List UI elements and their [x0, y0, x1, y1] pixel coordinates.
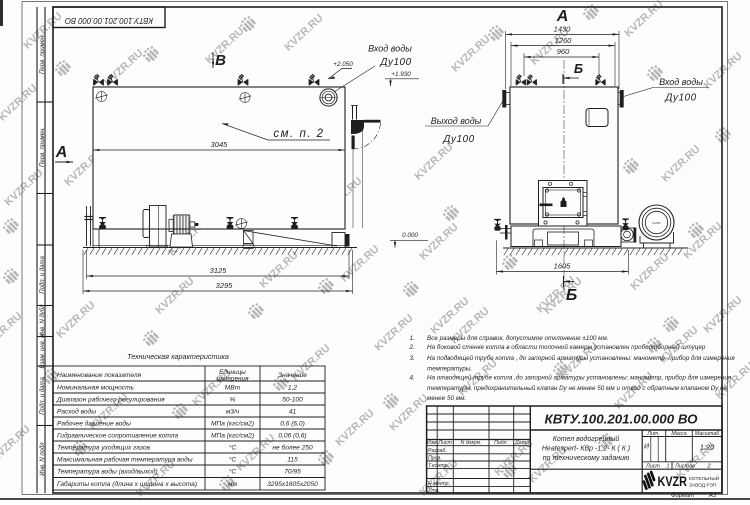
svg-text:Взам. инв. N: Взам. инв. N [40, 333, 46, 369]
svg-text:Инв. N дубл: Инв. N дубл [40, 304, 46, 338]
svg-text:Т.контр.: Т.контр. [428, 463, 449, 469]
svg-text:На подводящей трубе котла , д: На подводящей трубе котла , до запорной … [427, 354, 735, 362]
svg-text:Н.контр.: Н.контр. [428, 481, 450, 487]
svg-text:0,6 (6,0): 0,6 (6,0) [280, 420, 305, 427]
svg-text:не более 250: не более 250 [272, 443, 313, 451]
svg-text:+1.930: +1.930 [391, 71, 411, 78]
svg-text:2: 2 [707, 463, 711, 469]
svg-text:Вход воды: Вход воды [368, 44, 412, 54]
svg-text:Лист: Лист [438, 440, 453, 446]
svg-text:Подп. и дата: Подп. и дата [40, 256, 46, 294]
svg-text:°С: °С [229, 443, 237, 451]
svg-text:Номинальная мощность: Номинальная мощность [57, 384, 135, 391]
svg-text:Инв. N подл: Инв. N подл [40, 442, 46, 476]
svg-text:Перв. примен.: Перв. примен. [40, 127, 46, 167]
svg-text:41: 41 [289, 408, 297, 415]
svg-text:°С: °С [229, 455, 237, 463]
svg-text:МВт: МВт [225, 384, 241, 391]
svg-text:Разраб.: Разраб. [428, 448, 447, 454]
svg-text:Листов: Листов [674, 463, 695, 469]
svg-text:3295х1605х2050: 3295х1605х2050 [267, 481, 318, 488]
svg-text:1: 1 [667, 463, 670, 469]
svg-text:2.: 2. [409, 344, 415, 351]
svg-text:МПа (кгс/см2): МПа (кгс/см2) [211, 432, 254, 439]
svg-text:Лит.: Лит. [646, 431, 659, 437]
svg-text:Масштаб: Масштаб [695, 431, 720, 437]
svg-text:960: 960 [557, 47, 570, 56]
svg-text:0.000: 0.000 [402, 232, 418, 239]
svg-text:Котел водогрейный: Котел водогрейный [553, 435, 620, 443]
svg-text:см. п. 2: см. п. 2 [273, 128, 324, 140]
svg-text:Габариты котла (длина х ширина: Габариты котла (длина х ширина х высота) [57, 480, 197, 488]
svg-text:Изм: Изм [427, 440, 437, 446]
svg-text:Перв. примен.: Перв. примен. [40, 34, 46, 74]
svg-text:МПа (кгс/см2): МПа (кгс/см2) [211, 420, 254, 427]
svg-text:ЗАВОД РЭП: ЗАВОД РЭП [689, 483, 717, 489]
svg-text:KVZR: KVZR [652, 221, 661, 225]
svg-text:Формат: Формат [671, 493, 694, 499]
svg-text:Пров.: Пров. [428, 456, 442, 462]
svg-text:Техническая характеристика: Техническая характеристика [127, 352, 229, 361]
svg-text:А: А [556, 8, 569, 25]
svg-text:Утв.: Утв. [428, 488, 440, 494]
svg-text:Ду100: Ду100 [442, 134, 474, 145]
svg-text:1.: 1. [410, 335, 415, 342]
svg-text:3045: 3045 [211, 140, 229, 149]
svg-text:1,2: 1,2 [288, 384, 297, 391]
svg-text:115: 115 [287, 456, 298, 463]
svg-text:Вход воды: Вход воды [659, 77, 703, 87]
svg-text:Максимальная рабочая температу: Максимальная рабочая температура воды [57, 455, 193, 463]
svg-text:менее 50 мм.: менее 50 мм. [427, 395, 466, 402]
svg-text:KVZR: KVZR [658, 474, 688, 489]
svg-text:мм: мм [228, 481, 238, 488]
svg-text:Б: Б [574, 61, 583, 76]
svg-text:1430: 1430 [554, 25, 572, 34]
svg-text:Ду100: Ду100 [664, 93, 696, 104]
svg-text:Подп. и дата: Подп. и дата [40, 377, 46, 415]
svg-text:1605: 1605 [554, 262, 572, 271]
svg-text:°С: °С [229, 468, 237, 476]
svg-text:Диапазон рабочего регулировани: Диапазон рабочего регулирования [56, 395, 165, 403]
svg-text:Наименование показателя: Наименование показателя [57, 372, 142, 379]
svg-text:А3: А3 [708, 493, 717, 499]
svg-text:КВТУ.100.201.00.000 ВО: КВТУ.100.201.00.000 ВО [65, 16, 153, 25]
svg-text:Температура воды (вход/выход): Температура воды (вход/выход) [57, 468, 158, 476]
svg-text:+2.050: +2.050 [333, 61, 353, 68]
svg-text:Значение: Значение [278, 372, 307, 379]
svg-text:Гидравлическое сопротивление к: Гидравлическое сопротивление котла [57, 431, 178, 439]
svg-text:Масса: Масса [671, 431, 686, 437]
svg-text:А: А [55, 144, 68, 161]
svg-text:На боковой стенке котла в обла: На боковой стенке котла в области топочн… [427, 343, 706, 351]
svg-text:3.: 3. [410, 355, 415, 362]
svg-text:Температура уходящих газов: Температура уходящих газов [57, 443, 150, 451]
svg-text:Heatexpert- КВр -1,2- К ( К ): Heatexpert- КВр -1,2- К ( К ) [542, 446, 630, 453]
svg-text:%: % [230, 396, 236, 403]
svg-text:измерения: измерения [217, 376, 250, 383]
svg-text:КВТУ.100.201.00.000 ВО: КВТУ.100.201.00.000 ВО [545, 412, 699, 427]
svg-text:В: В [215, 52, 226, 69]
svg-text:Выход воды: Выход воды [431, 116, 482, 126]
svg-text:На отводящей трубе котла ,до з: На отводящей трубе котла ,до запорной ар… [427, 374, 732, 382]
svg-text:3295: 3295 [216, 281, 234, 290]
svg-text:температуры.: температуры. [427, 366, 472, 373]
svg-text:температуры, предохранительный: температуры, предохранительный клапан Dу… [427, 384, 728, 392]
svg-text:Подп.: Подп. [494, 440, 508, 446]
svg-text:Лист: Лист [645, 463, 660, 469]
svg-text:Все размеры для справок, допус: Все размеры для справок, допустимое откл… [427, 334, 609, 342]
svg-text:70/95: 70/95 [284, 469, 301, 476]
svg-text:1260: 1260 [555, 36, 573, 45]
svg-text:N докум.: N докум. [461, 440, 482, 446]
svg-text:по техническому заданию: по техническому заданию [543, 454, 630, 462]
svg-text:3125: 3125 [210, 266, 228, 275]
svg-text:0,06 (0,6): 0,06 (0,6) [278, 432, 306, 439]
svg-text:4.: 4. [410, 375, 415, 382]
svg-text:1:20: 1:20 [700, 443, 715, 452]
svg-text:м3/ч: м3/ч [226, 408, 240, 415]
svg-text:Расход воды: Расход воды [57, 407, 96, 415]
svg-text:50-100: 50-100 [282, 396, 303, 403]
svg-text:Б: Б [566, 287, 577, 304]
svg-text:Рабочее давление воды: Рабочее давление воды [57, 419, 131, 427]
svg-text:Дата: Дата [514, 440, 529, 446]
svg-text:Ду100: Ду100 [379, 57, 411, 68]
